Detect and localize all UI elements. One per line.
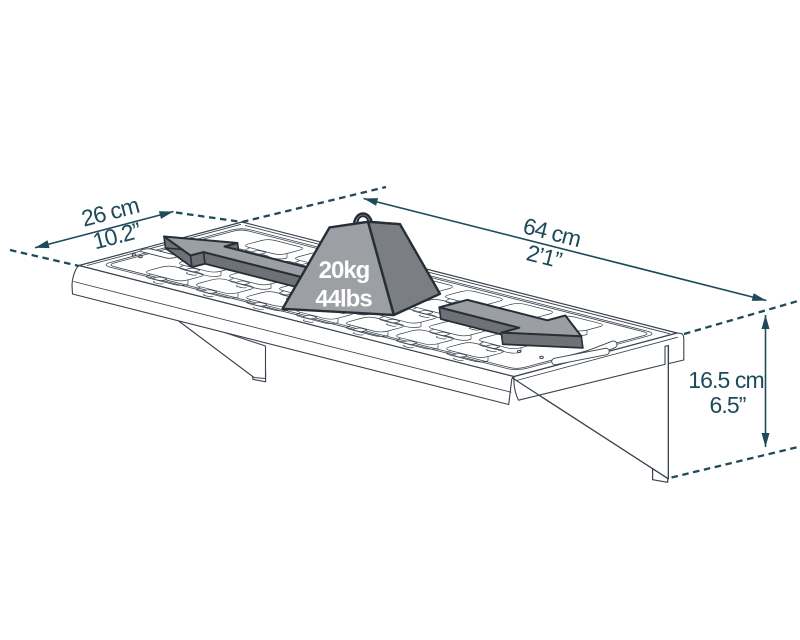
- svg-text:44lbs: 44lbs: [315, 286, 372, 313]
- svg-text:16.5 cm: 16.5 cm: [688, 367, 764, 393]
- svg-text:20kg: 20kg: [319, 257, 370, 284]
- svg-text:6.5”: 6.5”: [709, 392, 745, 418]
